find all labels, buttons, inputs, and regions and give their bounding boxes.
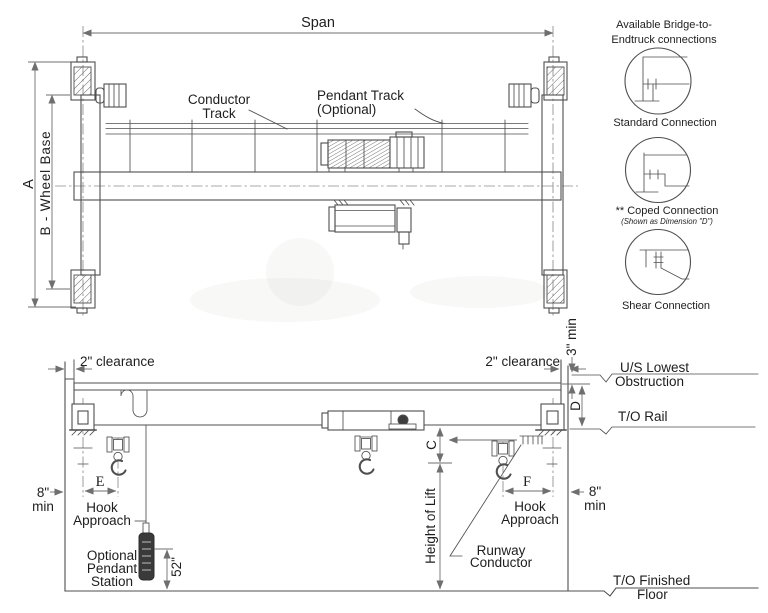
dimension-d: D: [568, 386, 583, 426]
hoist-plan: [321, 132, 424, 172]
hoist-motor-end: [398, 415, 408, 425]
finished-floor-label-2: Floor: [637, 587, 668, 602]
conductor-track-rails: [106, 120, 528, 172]
to-rail-label: T/O Rail: [618, 409, 668, 424]
trolley-plan: [329, 200, 414, 249]
hoist-motor: [390, 137, 424, 168]
conductor-track-label-2: Track: [202, 106, 235, 121]
scan-watermark: [190, 238, 550, 322]
dim-a-label: A: [21, 179, 37, 189]
us-lowest-obstruction-callout: U/S Lowest Obstruction: [572, 360, 758, 389]
dimension-f: F Hook Approach: [501, 474, 559, 527]
dimension-wheel-base: B - Wheel Base: [38, 95, 70, 289]
pendant-track-callout: Pendant Track (Optional): [317, 88, 444, 124]
hook-block-center: [355, 436, 377, 474]
span-label: Span: [301, 15, 335, 31]
runway-conductor-label-2: Conductor: [470, 555, 533, 570]
coped-connection-note: (Shown as Dimension "D"): [621, 217, 713, 226]
drive-motor-right: [509, 84, 539, 107]
crane-dimension-diagram: Span A B - Wheel Base: [0, 0, 768, 613]
finished-floor-label-1: T/O Finished: [613, 573, 690, 588]
shear-connection-label: Shear Connection: [622, 300, 710, 312]
min-side-left-1: 8": [37, 485, 50, 500]
coped-connection-detail: ** Coped Connection (Shown as Dimension …: [616, 138, 719, 227]
conductor-track-label-1: Conductor: [188, 92, 251, 107]
min-side-left-2: min: [32, 499, 54, 514]
hoist-elevation: [322, 411, 424, 430]
min-side-right-dimension: 8" min: [571, 484, 606, 513]
hoist-drum: [328, 140, 390, 168]
hook-approach-left-2: Approach: [73, 513, 131, 528]
dim-d-label: D: [568, 401, 583, 411]
min-top-label: 3" min: [564, 318, 579, 356]
us-lowest-label-2: Obstruction: [615, 374, 684, 389]
dim-f-label: F: [523, 474, 531, 490]
clearance-left-dimension: 2" clearance: [48, 354, 155, 382]
connections-heading-2: Endtruck connections: [611, 34, 717, 46]
connections-heading-1: Available Bridge-to-: [616, 19, 712, 31]
min-side-right-1: 8": [589, 484, 602, 499]
shear-connection-detail: Shear Connection: [622, 230, 710, 313]
pendant-station: Optional Pendant Station: [87, 523, 154, 589]
wheel-top-right: [547, 67, 564, 95]
clearance-right-label: 2" clearance: [485, 354, 560, 369]
dim-c-label: C: [424, 440, 439, 450]
standard-connection-label: Standard Connection: [613, 117, 716, 129]
min-side-right-2: min: [584, 498, 606, 513]
pendant-track-label-1: Pendant Track: [317, 88, 404, 103]
pendant-height-dimension: 52": [154, 549, 184, 589]
clearance-left-label: 2" clearance: [80, 354, 155, 369]
dim-e-label: E: [96, 474, 105, 490]
min-top-clearance-dimension: 3" min: [562, 318, 590, 399]
runway-wall-left: [65, 362, 74, 591]
us-lowest-label-1: U/S Lowest: [620, 360, 689, 375]
span-dimension: Span: [83, 15, 553, 33]
endtruck-right-plan: [542, 57, 567, 313]
pendant-station-label-3: Station: [91, 574, 133, 589]
hook-block-left: [107, 437, 129, 475]
pendant-track-label-2: (Optional): [317, 102, 376, 117]
height-of-lift-label: Height of Lift: [423, 488, 438, 564]
dimension-c: C: [424, 428, 452, 463]
height-of-lift-dimension: Height of Lift: [423, 464, 440, 589]
wheel-base-label: B - Wheel Base: [38, 131, 53, 236]
endtruck-right-elevation: [536, 404, 566, 464]
hook-approach-right-2: Approach: [501, 512, 559, 527]
elevation-view: 2" clearance 2" clearance 3" min U/S Low…: [32, 318, 758, 602]
dimension-e: E Hook Approach: [73, 474, 146, 528]
wheel-bottom-left: [74, 275, 91, 303]
wheel-bottom-right: [547, 275, 564, 303]
festoon-cable: [121, 390, 147, 417]
standard-connection-detail: Standard Connection: [613, 48, 716, 129]
to-rail-callout: T/O Rail: [570, 409, 755, 434]
diagram-canvas: Span A B - Wheel Base: [0, 0, 768, 613]
min-side-left-dimension: 8" min: [32, 485, 63, 514]
pendant-height-label: 52": [169, 557, 184, 577]
connections-panel: Available Bridge-to- Endtruck connection…: [611, 19, 718, 312]
wheel-top-left: [74, 67, 91, 95]
coped-connection-label: ** Coped Connection: [616, 205, 719, 217]
